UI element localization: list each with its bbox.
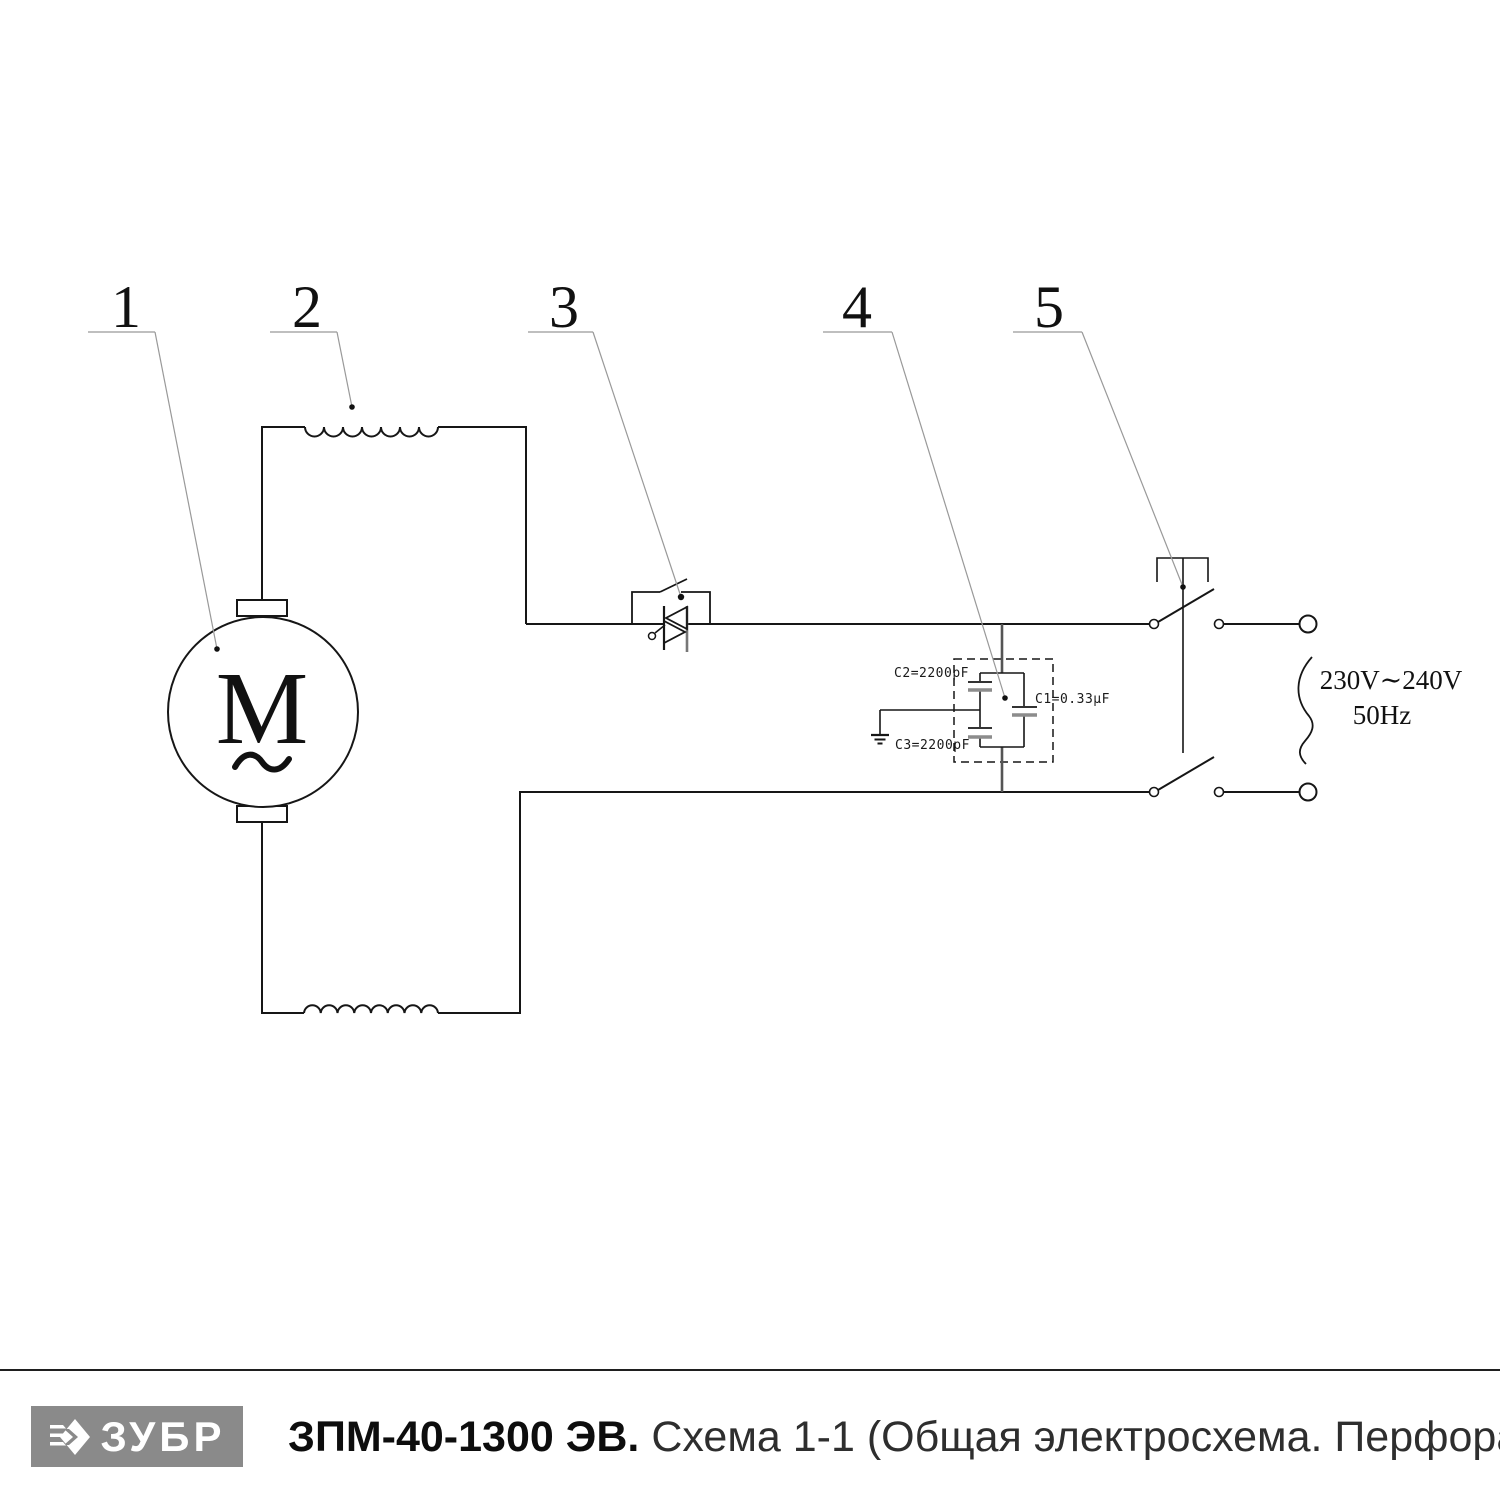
supply-frequency: 50Hz bbox=[1353, 700, 1411, 730]
bypass-loop-left bbox=[632, 592, 660, 624]
label-c2: C2=2200pF bbox=[894, 666, 969, 681]
wire-top-right bbox=[438, 427, 526, 624]
callout-5: 5 bbox=[1013, 274, 1186, 590]
callout-4-number: 4 bbox=[842, 274, 872, 340]
supply-voltage: 230V∼240V bbox=[1320, 665, 1463, 695]
switch-contact-upper-left bbox=[1150, 620, 1159, 629]
footer-divider bbox=[0, 1369, 1500, 1371]
supply-terminal-lower bbox=[1300, 784, 1317, 801]
label-c3: C3=2200pF bbox=[895, 738, 970, 753]
wire-motor-bottom-lead bbox=[262, 818, 304, 1013]
field-coil-top bbox=[305, 427, 438, 437]
triac-regulator bbox=[632, 579, 710, 652]
zubr-logo-icon bbox=[48, 1417, 92, 1457]
wire-lower-rail bbox=[438, 792, 1150, 1013]
switch-blade-upper bbox=[1158, 589, 1214, 622]
callout-1-number: 1 bbox=[111, 274, 141, 340]
field-coil-bottom bbox=[304, 1005, 438, 1013]
callout-5-number: 5 bbox=[1034, 274, 1064, 340]
switch-blade-lower bbox=[1158, 757, 1214, 790]
capacitor-c2 bbox=[968, 682, 992, 690]
callout-2-number: 2 bbox=[292, 274, 322, 340]
switch-contact-lower-right bbox=[1215, 788, 1224, 797]
wire-motor-top-lead bbox=[262, 427, 305, 604]
motor-letter: M bbox=[216, 651, 308, 766]
bypass-switch-blade bbox=[660, 579, 687, 592]
supply-terminal-upper bbox=[1300, 616, 1317, 633]
callout-2: 2 bbox=[270, 274, 355, 410]
capacitor-c3 bbox=[968, 728, 992, 737]
schema-subtitle: Схема 1-1 (Общая электросхема. Перфорато… bbox=[651, 1413, 1500, 1461]
page: M bbox=[0, 0, 1500, 1500]
capacitor-c1 bbox=[1012, 707, 1037, 715]
schematic-canvas: M bbox=[0, 0, 1500, 1500]
ground-icon bbox=[871, 710, 889, 744]
motor-brush-bottom bbox=[237, 806, 287, 822]
switch-contact-upper-right bbox=[1215, 620, 1224, 629]
brand-name: ЗУБР bbox=[100, 1416, 225, 1458]
diagram-title: ЗПМ-40-1300 ЭВ.Схема 1-1 (Общая электрос… bbox=[288, 1414, 1500, 1460]
callout-3: 3 bbox=[528, 274, 684, 600]
switch-contact-lower-left bbox=[1150, 788, 1159, 797]
motor-symbol: M bbox=[168, 600, 358, 822]
callout-4: 4 bbox=[823, 274, 1008, 701]
label-c1: C1=0.33µF bbox=[1035, 692, 1110, 707]
model-name: ЗПМ-40-1300 ЭВ. bbox=[288, 1413, 639, 1461]
ac-wave-icon bbox=[1298, 657, 1312, 764]
power-switch bbox=[1150, 558, 1300, 797]
wiring bbox=[262, 427, 1150, 1013]
triac-icon bbox=[649, 606, 688, 652]
supply-terminals: 230V∼240V 50Hz bbox=[1298, 616, 1462, 801]
bypass-switch bbox=[632, 579, 710, 624]
motor-brush-top bbox=[237, 600, 287, 616]
triac-gate-terminal bbox=[649, 633, 656, 640]
callout-1: 1 bbox=[88, 274, 220, 652]
callout-3-number: 3 bbox=[549, 274, 579, 340]
zubr-logo: ЗУБР bbox=[31, 1406, 243, 1467]
